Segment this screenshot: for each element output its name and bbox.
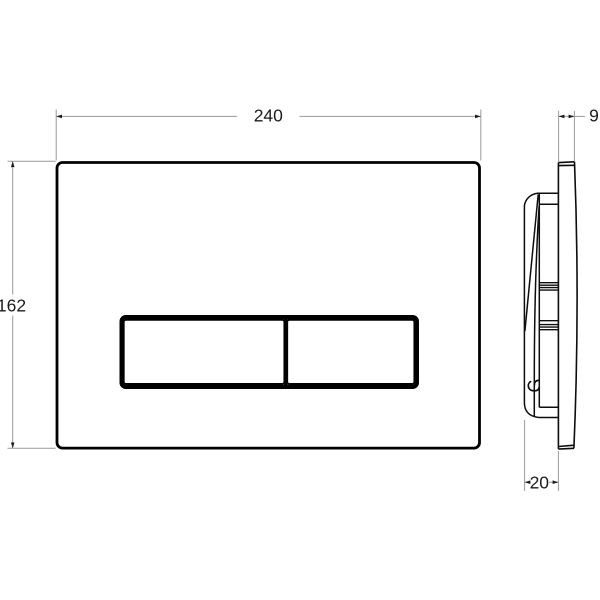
svg-text:20: 20 [530,472,550,492]
svg-text:9: 9 [589,105,599,125]
svg-text:162: 162 [0,295,26,315]
svg-text:240: 240 [254,106,283,126]
